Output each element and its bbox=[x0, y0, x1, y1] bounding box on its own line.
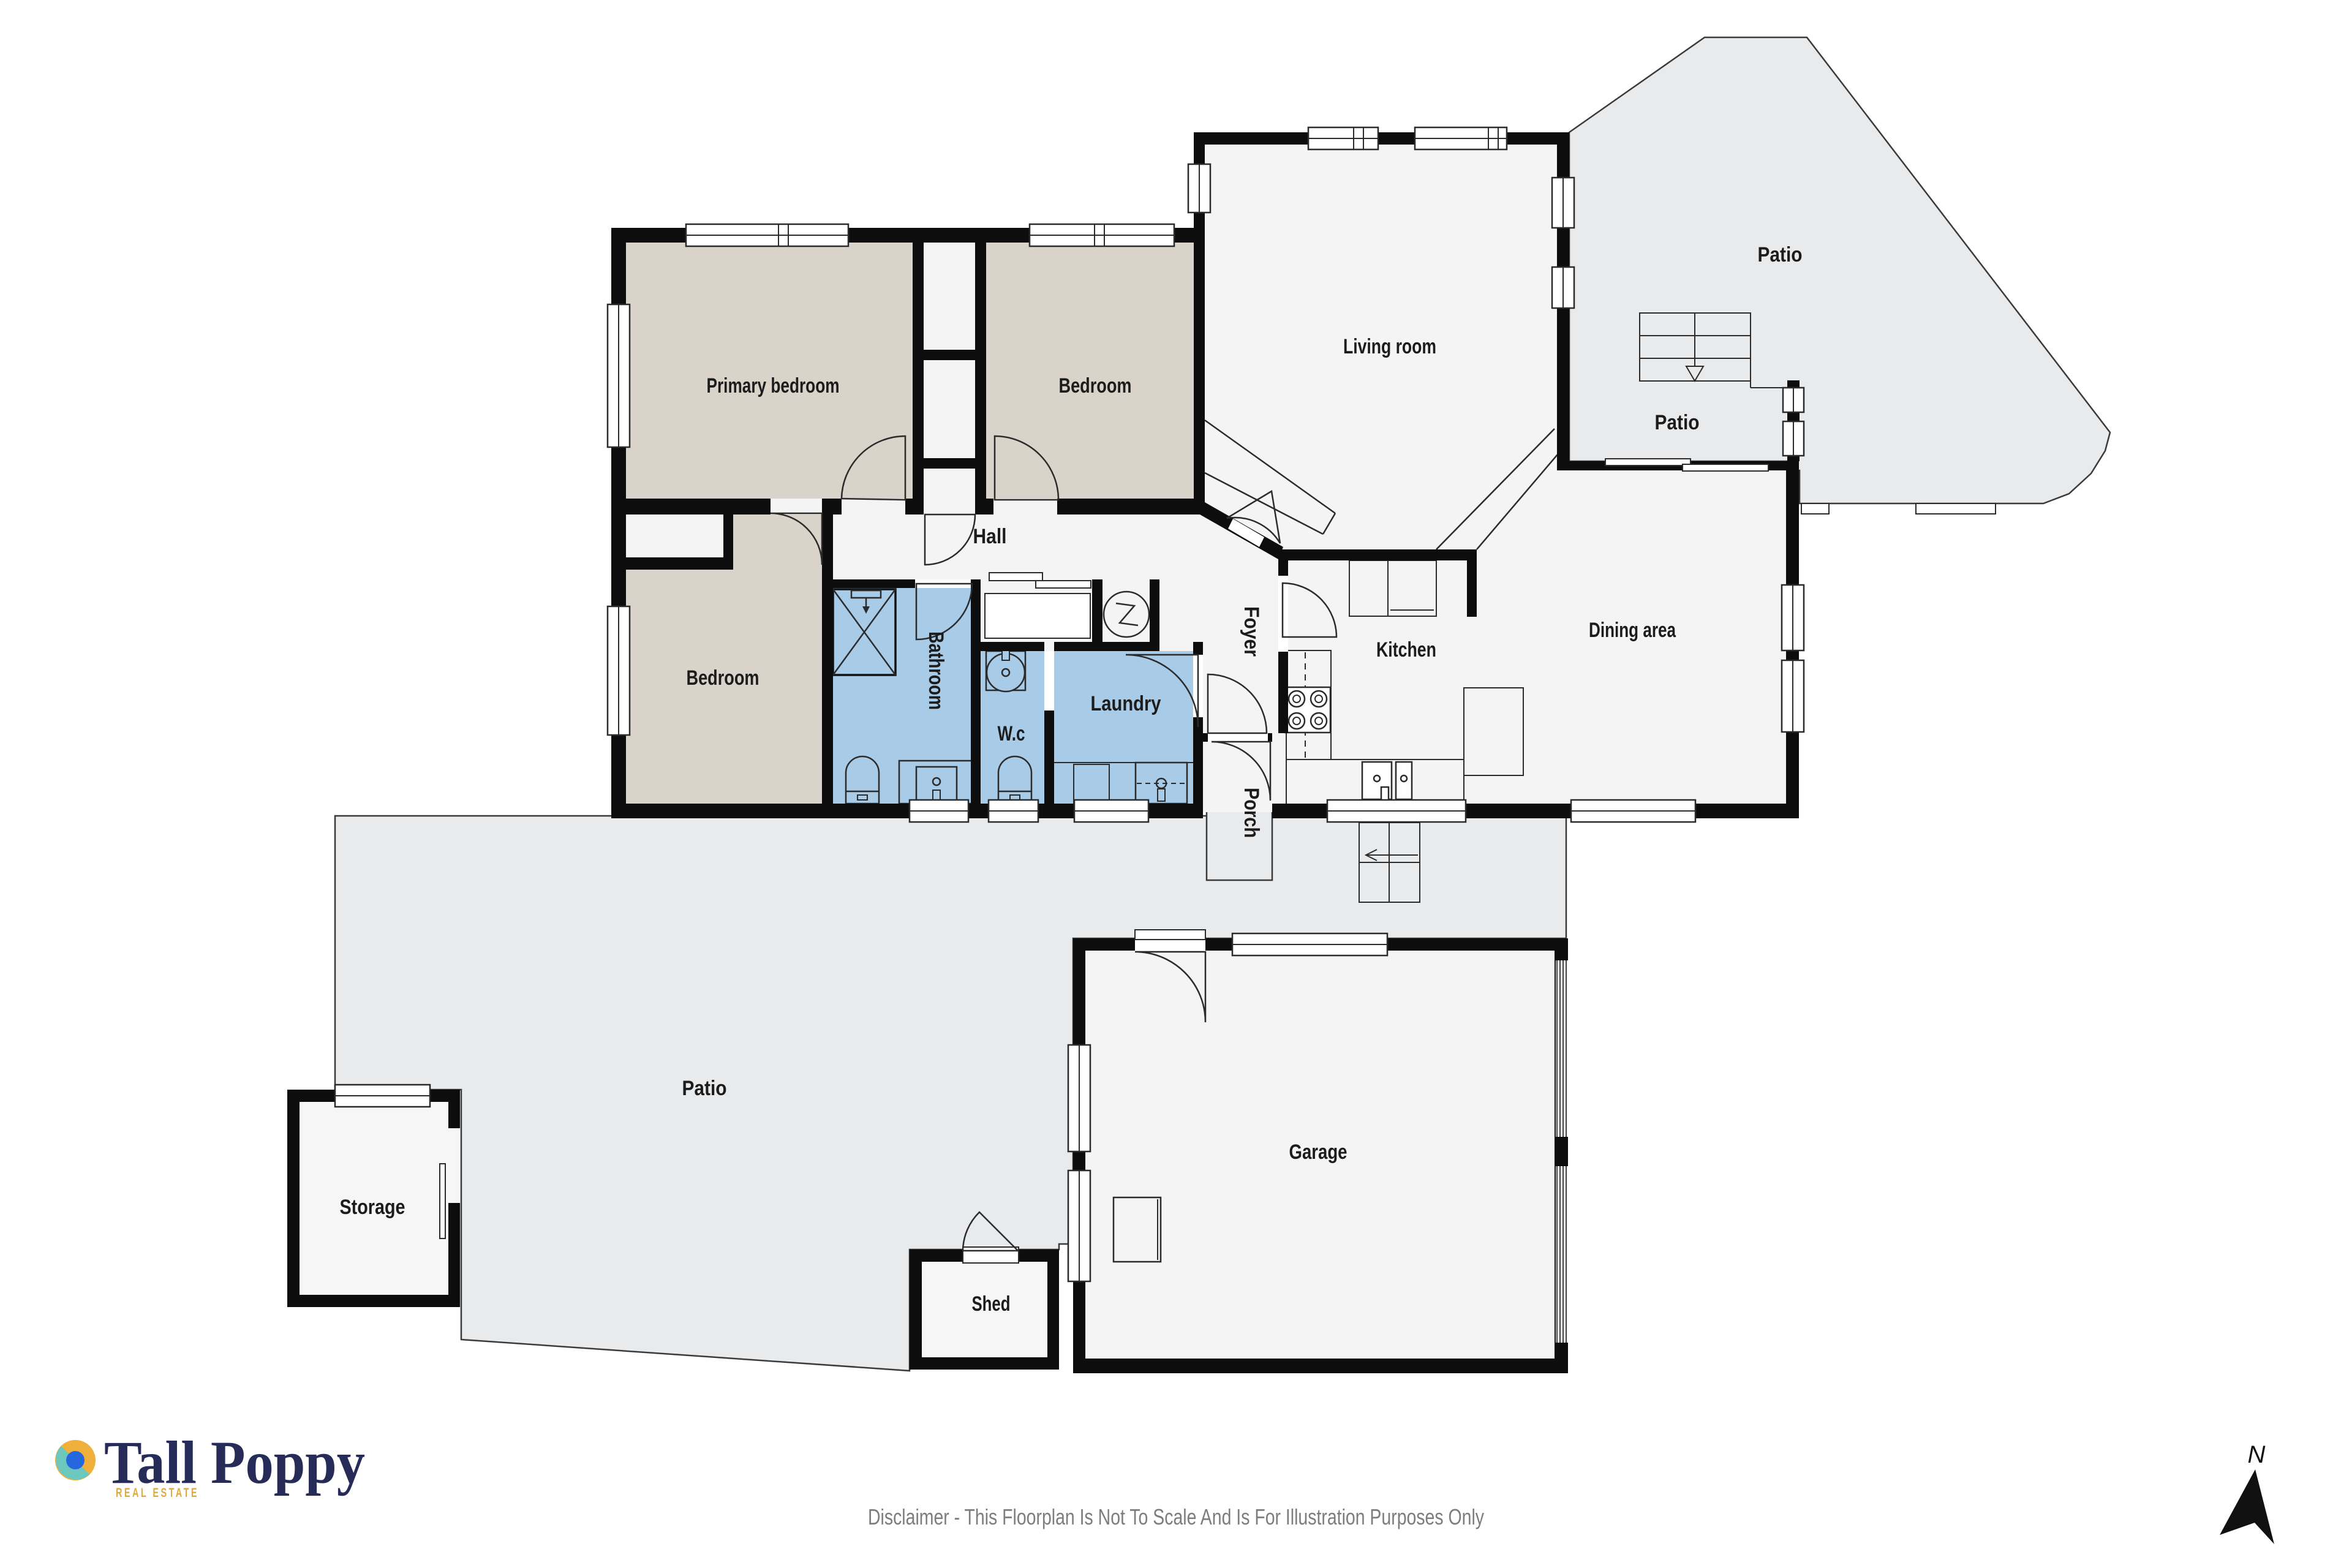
svg-text:Shed: Shed bbox=[972, 1292, 1011, 1316]
svg-text:Disclaimer - This Floorplan Is: Disclaimer - This Floorplan Is Not To Sc… bbox=[868, 1504, 1484, 1529]
svg-text:Primary bedroom: Primary bedroom bbox=[707, 374, 840, 398]
svg-text:Garage: Garage bbox=[1289, 1140, 1347, 1164]
svg-text:Bathroom: Bathroom bbox=[924, 631, 948, 710]
svg-text:Porch: Porch bbox=[1240, 788, 1263, 838]
svg-text:Storage: Storage bbox=[340, 1196, 405, 1219]
svg-text:Patio: Patio bbox=[682, 1077, 727, 1100]
svg-text:REAL ESTATE: REAL ESTATE bbox=[116, 1486, 199, 1500]
svg-text:Foyer: Foyer bbox=[1240, 606, 1263, 657]
svg-text:Bedroom: Bedroom bbox=[1059, 374, 1132, 398]
svg-text:W.c: W.c bbox=[998, 722, 1025, 745]
svg-text:Laundry: Laundry bbox=[1091, 692, 1161, 715]
svg-text:Dining area: Dining area bbox=[1589, 619, 1676, 642]
svg-text:Bedroom: Bedroom bbox=[687, 666, 759, 690]
svg-text:Hall: Hall bbox=[973, 525, 1007, 548]
svg-text:Living room: Living room bbox=[1343, 335, 1436, 358]
svg-text:Patio: Patio bbox=[1655, 411, 1700, 434]
svg-text:Kitchen: Kitchen bbox=[1376, 638, 1436, 661]
svg-text:N: N bbox=[2248, 1441, 2266, 1468]
svg-text:Patio: Patio bbox=[1758, 243, 1803, 266]
